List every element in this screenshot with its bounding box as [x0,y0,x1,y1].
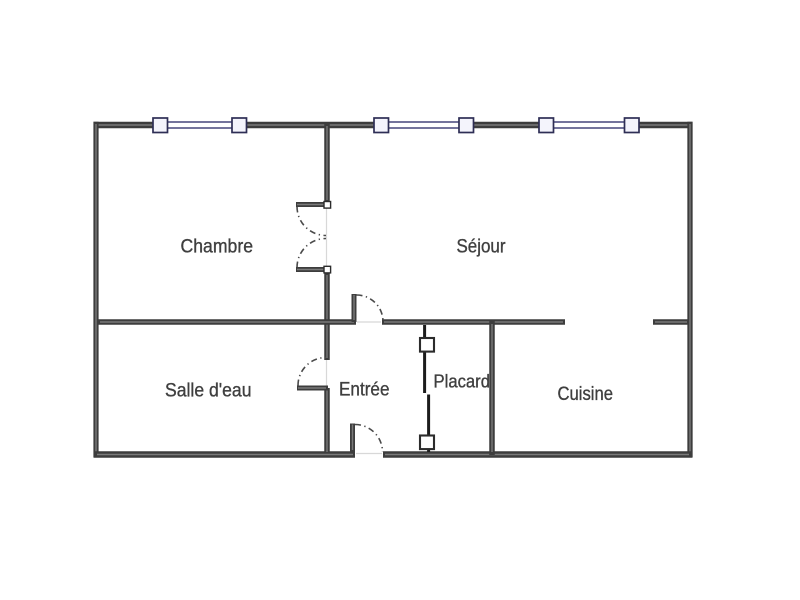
svg-text:Chambre: Chambre [181,236,254,258]
svg-text:Entrée: Entrée [339,379,390,401]
svg-text:Salle d'eau: Salle d'eau [165,380,252,402]
svg-text:Cuisine: Cuisine [558,383,614,405]
svg-text:Placard: Placard [434,372,491,392]
svg-text:Séjour: Séjour [457,236,506,258]
